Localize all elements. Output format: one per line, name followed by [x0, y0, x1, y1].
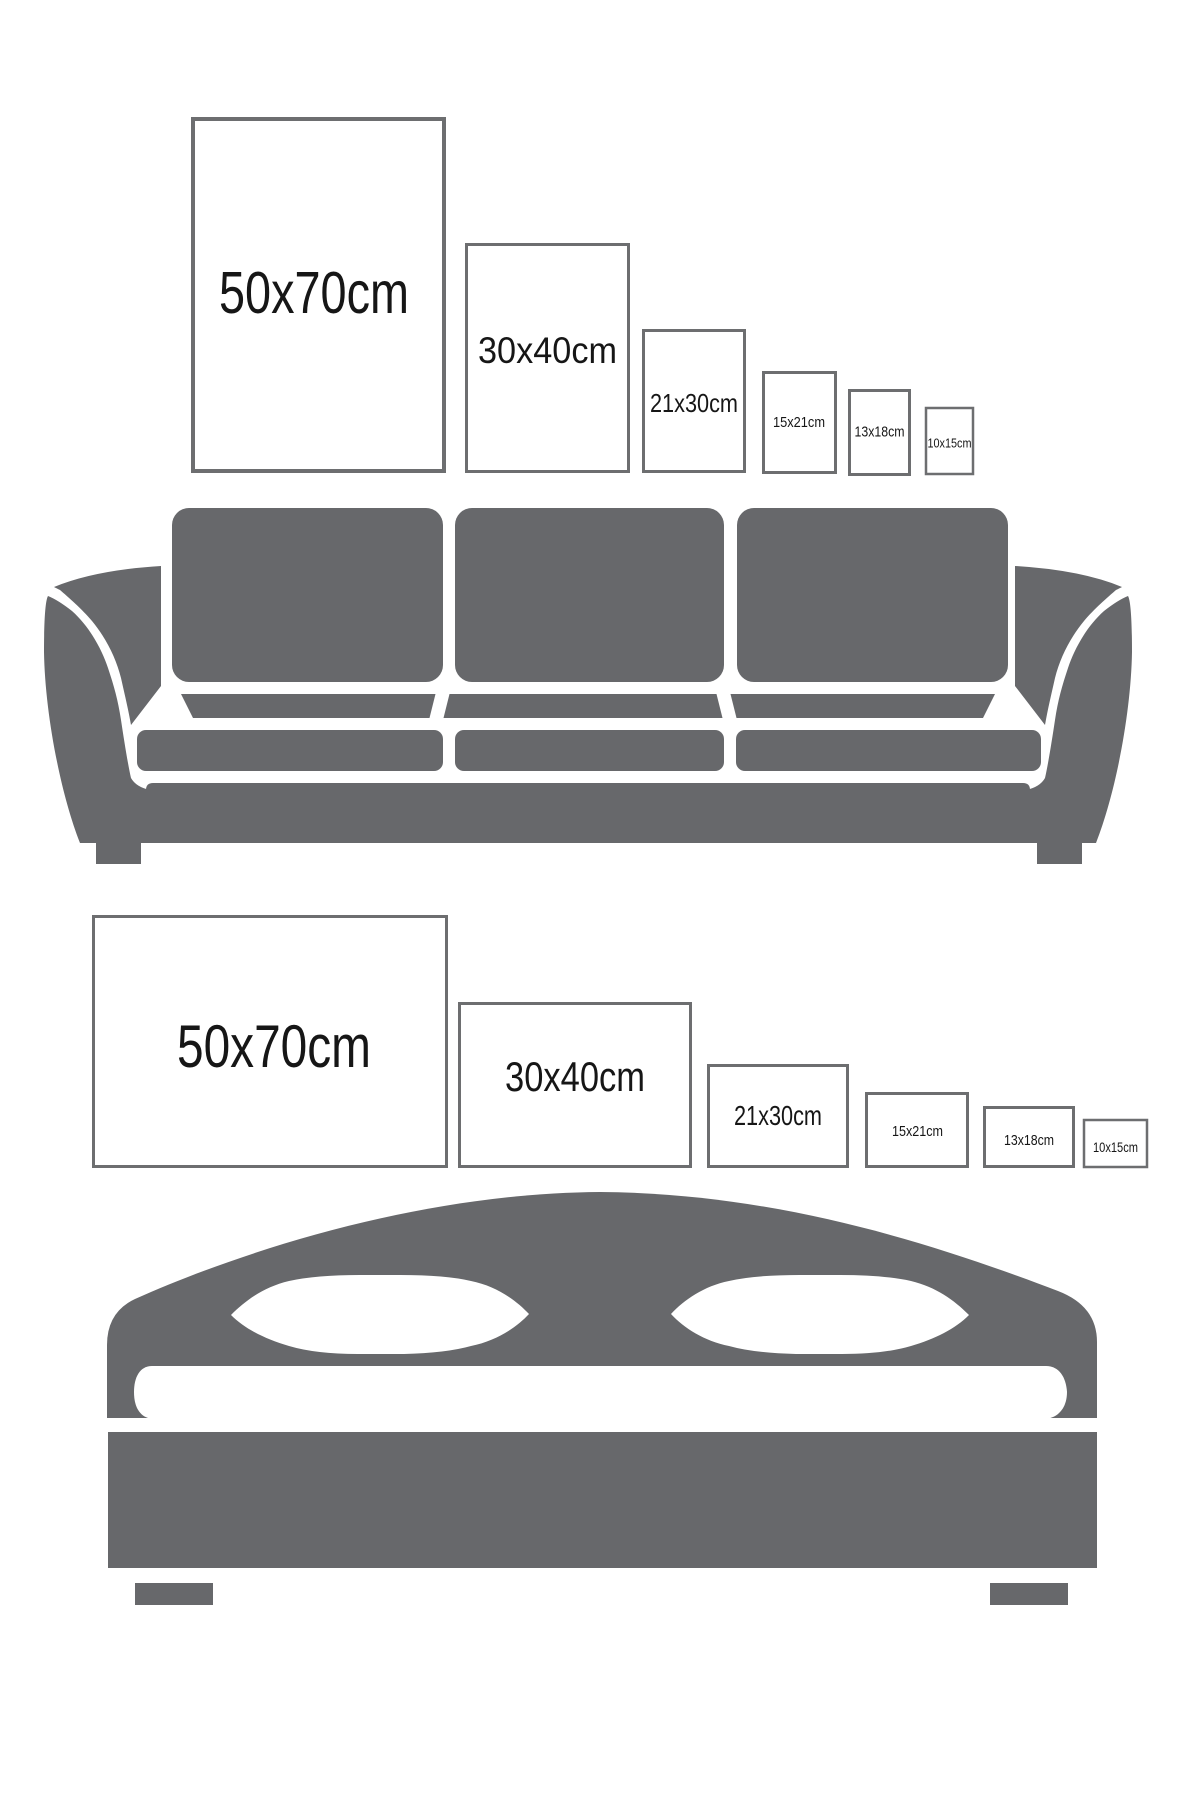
svg-text:10x15cm: 10x15cm — [928, 436, 972, 451]
svg-text:30x40cm: 30x40cm — [505, 1053, 645, 1100]
svg-text:10x15cm: 10x15cm — [1093, 1140, 1138, 1155]
svg-text:50x70cm: 50x70cm — [177, 1013, 371, 1080]
svg-text:21x30cm: 21x30cm — [650, 388, 738, 418]
svg-text:30x40cm: 30x40cm — [478, 330, 617, 371]
svg-text:13x18cm: 13x18cm — [1004, 1132, 1054, 1149]
svg-text:50x70cm: 50x70cm — [219, 260, 409, 326]
svg-text:21x30cm: 21x30cm — [734, 1100, 822, 1131]
svg-text:15x21cm: 15x21cm — [892, 1123, 943, 1140]
svg-text:15x21cm: 15x21cm — [773, 415, 825, 431]
svg-text:13x18cm: 13x18cm — [855, 424, 905, 441]
